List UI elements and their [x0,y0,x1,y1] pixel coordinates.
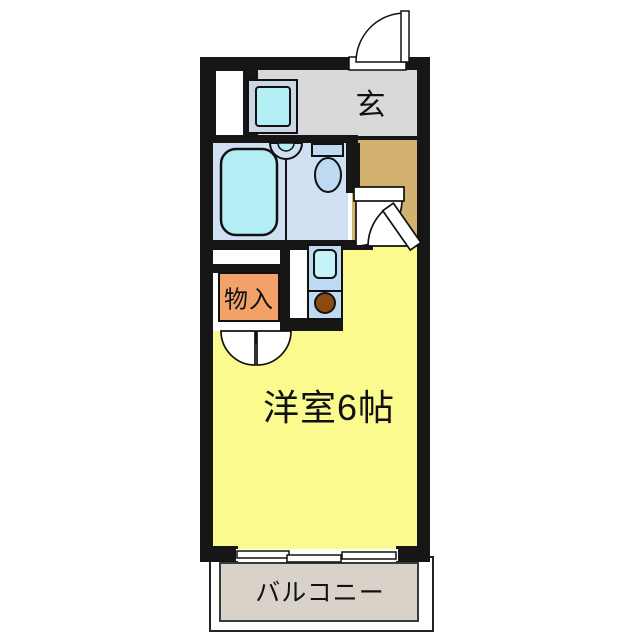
entrance-door-icon [356,13,405,62]
main-room-label: 洋室6帖 [263,379,395,431]
fixtures-overlay [0,0,640,640]
balcony-label: バルコニー [255,573,385,609]
sliding-window-icon [287,555,341,562]
closet-label: 物入 [224,280,274,315]
bathtub-icon [221,149,277,235]
bathroom-door-leaf [354,187,404,201]
sliding-window-icon [237,551,289,558]
stove-burner-icon [315,293,335,313]
toilet-tank [312,144,343,156]
kitchen-sink-icon [314,250,336,278]
washing-machine-tub [256,87,290,126]
floor-plan: 玄 物入 洋室6帖 バルコニー [0,0,640,640]
toilet-icon [315,158,341,192]
closet-double-door-icon [257,331,291,365]
entrance-door-leaf [401,11,409,62]
entrance-label: 玄 [356,80,387,124]
sliding-window-icon [342,552,396,559]
closet-double-door-icon [221,331,255,365]
